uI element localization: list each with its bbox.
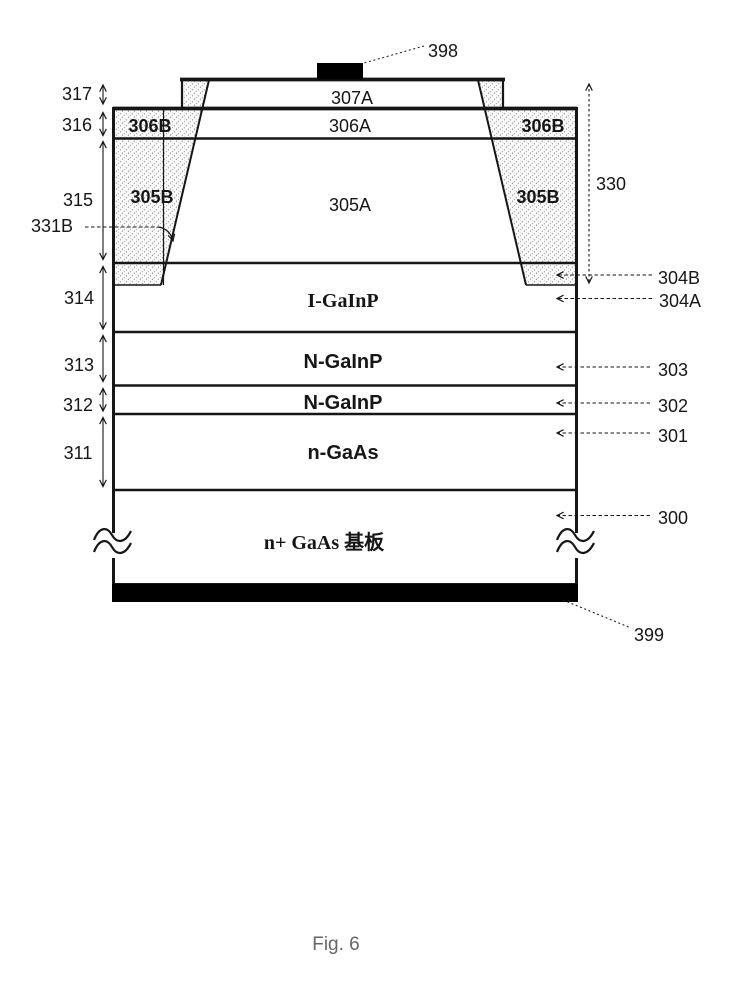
ref-312: 312 [63, 395, 93, 415]
ref-399: 399 [634, 625, 664, 645]
layer-label-306a: 306A [329, 116, 371, 136]
top-contact [317, 63, 363, 80]
bottom-electrode [112, 584, 578, 602]
device-cross-section-diagram: 317 316 315 331B 314 313 312 311 330 304… [0, 0, 732, 992]
ref-315: 315 [63, 190, 93, 210]
figure-caption: Fig. 6 [312, 934, 360, 955]
ref-300: 300 [658, 508, 688, 528]
ref-314: 314 [64, 288, 94, 308]
layer-label-i-gainp: I-GaInP [307, 290, 378, 312]
ref-398: 398 [428, 41, 458, 61]
patent-figure-page: 317 316 315 331B 314 313 312 311 330 304… [0, 0, 732, 992]
layer-label-305b-right: 305B [516, 187, 559, 207]
ref-316: 316 [62, 115, 92, 135]
ref-317: 317 [62, 84, 92, 104]
layer-label-n-gainp-lower: N-GaInP [304, 392, 383, 414]
layer-label-substrate: n+ GaAs 基板 [264, 530, 385, 554]
layer-label-306b-left: 306B [128, 116, 171, 136]
ref-304b: 304B [658, 268, 700, 288]
layer-label-n-gaas: n-GaAs [307, 442, 378, 464]
layer-label-n-gainp-upper: N-GaInP [304, 351, 383, 373]
ref-331b: 331B [31, 216, 73, 236]
ref-302: 302 [658, 396, 688, 416]
ref-303: 303 [658, 360, 688, 380]
layer-label-307a: 307A [331, 88, 373, 108]
ref-330: 330 [596, 174, 626, 194]
layer-label-305a: 305A [329, 195, 371, 215]
layer-label-305b-left: 305B [130, 187, 173, 207]
ref-313: 313 [64, 355, 94, 375]
ref-304a: 304A [659, 291, 701, 311]
ref-311: 311 [64, 443, 93, 463]
leader-399 [563, 600, 631, 628]
leader-398 [357, 46, 424, 65]
ref-301: 301 [658, 426, 688, 446]
layer-label-306b-right: 306B [521, 116, 564, 136]
